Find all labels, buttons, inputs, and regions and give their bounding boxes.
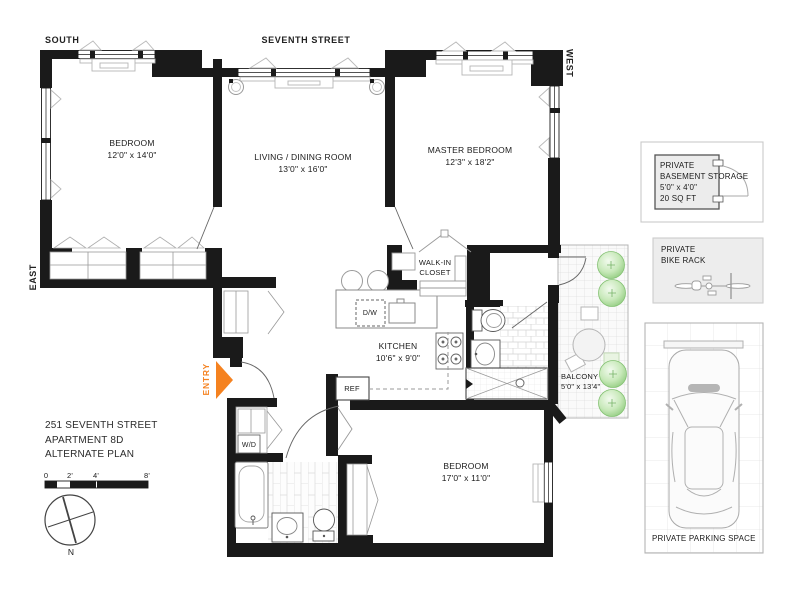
- entry-door-arc: [241, 362, 274, 398]
- bathroom2: [235, 462, 338, 543]
- floor-plan-page: SOUTH SEVENTH STREET WEST EAST BEDROOM12…: [0, 0, 800, 594]
- master-bedroom-label: MASTER BEDROOM12'3" x 18'2": [428, 145, 513, 168]
- toilet-icon: [313, 509, 335, 541]
- scale-tick-2: 2': [67, 470, 73, 482]
- parking-label: PRIVATE PARKING SPACE: [652, 533, 756, 544]
- stool-icon: [368, 271, 389, 292]
- title-block: 251 SEVENTH STREET APARTMENT 8D ALTERNAT…: [45, 419, 158, 463]
- walk-in-closet-label: WALK-INCLOSET: [419, 258, 451, 278]
- direction-label-east: EAST: [28, 264, 40, 290]
- kitchen-label: KITCHEN10'6" x 9'0": [376, 341, 420, 364]
- sink-icon: [272, 513, 303, 542]
- bedroom1-label: BEDROOM12'0" x 14'0": [107, 138, 156, 161]
- compass-north-label: N: [68, 547, 74, 559]
- refrigerator-label: REF: [344, 384, 360, 394]
- bedroom2-label: BEDROOM17'0" x 11'0": [442, 461, 491, 484]
- balcony-deck: [558, 245, 628, 418]
- window: [545, 462, 553, 503]
- floor-plan-drawing: [0, 0, 800, 594]
- living-room-label: LIVING / DINING ROOM13'0" x 16'0": [254, 152, 352, 175]
- closet-door-icon: [367, 466, 378, 534]
- washer-dryer-label: W/D: [242, 441, 256, 450]
- bathroom1: [466, 306, 548, 399]
- splayed-opening: [338, 408, 352, 450]
- scale-tick-4: 4': [93, 470, 99, 482]
- window: [41, 88, 51, 200]
- bathtub-icon: [235, 462, 268, 528]
- stool-icon: [342, 271, 363, 292]
- scale-tick-8: 8': [144, 470, 150, 482]
- street-label: SEVENTH STREET: [262, 35, 351, 47]
- toilet-icon: [472, 310, 505, 332]
- sink-icon: [471, 340, 500, 369]
- car-icon: [664, 341, 743, 528]
- radiator-icon: [533, 464, 544, 502]
- patio-table-icon: [573, 329, 605, 361]
- window: [238, 68, 370, 77]
- window: [78, 50, 155, 59]
- direction-label-south: SOUTH: [45, 35, 80, 47]
- closet-double-doors: [419, 230, 471, 252]
- direction-label-west: WEST: [563, 49, 575, 77]
- closet-door-icon: [268, 291, 284, 334]
- balcony-label: BALCONY5'0" x 13'4": [561, 372, 600, 392]
- basement-storage-label: PRIVATE BASEMENT STORAGE 5'0" x 4'0" 20 …: [660, 160, 748, 204]
- scale-bar: [45, 481, 148, 488]
- parking-panel: [645, 323, 763, 553]
- scale-tick-0: 0: [44, 470, 48, 482]
- door-leaf: [395, 207, 413, 249]
- tile-wall: [500, 306, 548, 368]
- patio-chair-icon: [581, 307, 598, 320]
- compass-rose-icon: [45, 495, 95, 545]
- bedroom2-closet: [347, 464, 378, 535]
- kitchen-sink-icon: [389, 303, 415, 323]
- bifold-door-icons: [54, 237, 204, 248]
- entry-closet: [224, 291, 284, 334]
- closet-door-icon: [267, 411, 282, 449]
- door-leaf: [197, 207, 214, 249]
- entry-label: ENTRY: [201, 363, 213, 396]
- window: [550, 86, 560, 158]
- dishwasher-label: D/W: [363, 309, 377, 318]
- shower-icon: [466, 368, 548, 399]
- stove-icon: [436, 333, 463, 369]
- bike-rack-label: PRIVATE BIKE RACK: [661, 244, 705, 266]
- window: [436, 51, 533, 60]
